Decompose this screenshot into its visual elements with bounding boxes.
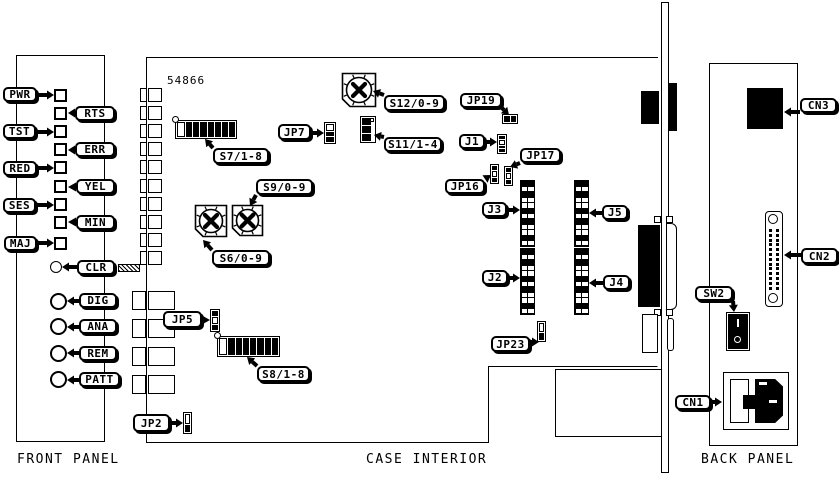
callout-ana: ANA: [79, 319, 117, 334]
callout-j5: J5: [602, 205, 628, 220]
callout-j1: J1: [459, 134, 485, 149]
callout-jp16: JP16: [445, 179, 485, 194]
callout-cn2: CN2: [801, 248, 838, 264]
callout-red: RED: [3, 161, 37, 176]
callout-s9-0-9: S9/0-9: [256, 179, 313, 195]
callout-s11-1-4: S11/1-4: [384, 137, 442, 152]
callout-patt: PATT: [79, 372, 120, 387]
callout-rem: REM: [79, 346, 117, 361]
callout-jp19: JP19: [460, 93, 502, 108]
callout-jp7: JP7: [278, 124, 311, 140]
callout-j3: J3: [482, 202, 507, 217]
callout-s8-1-8: S8/1-8: [257, 366, 310, 382]
callout-yel: YEL: [76, 179, 115, 194]
callout-s7-1-8: S7/1-8: [213, 148, 269, 164]
callout-maj: MAJ: [4, 236, 37, 251]
callout-clr: CLR: [77, 260, 115, 275]
callout-j4: J4: [603, 275, 630, 290]
callout-j2: J2: [482, 270, 508, 285]
callout-jp23: JP23: [491, 336, 530, 352]
callout-tst: TST: [3, 124, 36, 139]
callout-s6-0-9: S6/0-9: [212, 250, 270, 266]
callout-pwr: PWR: [3, 87, 37, 102]
callout-dig: DIG: [79, 293, 117, 308]
callout-jp5: JP5: [163, 311, 202, 328]
callout-s12-0-9: S12/0-9: [384, 95, 445, 111]
label-layer: PWRRTSTSTERRREDYELSESMINMAJCLRDIGANAREMP…: [0, 0, 839, 479]
callout-cn1: CN1: [675, 395, 711, 410]
callout-jp17: JP17: [520, 148, 561, 163]
callout-rts: RTS: [75, 106, 115, 121]
callout-ses: SES: [3, 198, 36, 213]
callout-jp2: JP2: [133, 414, 170, 432]
equipment-panel-diagram: PWRRTSTSTERRREDYELSESMINMAJCLRDIGANAREMP…: [0, 0, 839, 479]
callout-cn3: CN3: [800, 98, 837, 113]
callout-sw2: SW2: [695, 286, 733, 301]
callout-err: ERR: [75, 142, 115, 157]
callout-min: MIN: [76, 215, 115, 230]
